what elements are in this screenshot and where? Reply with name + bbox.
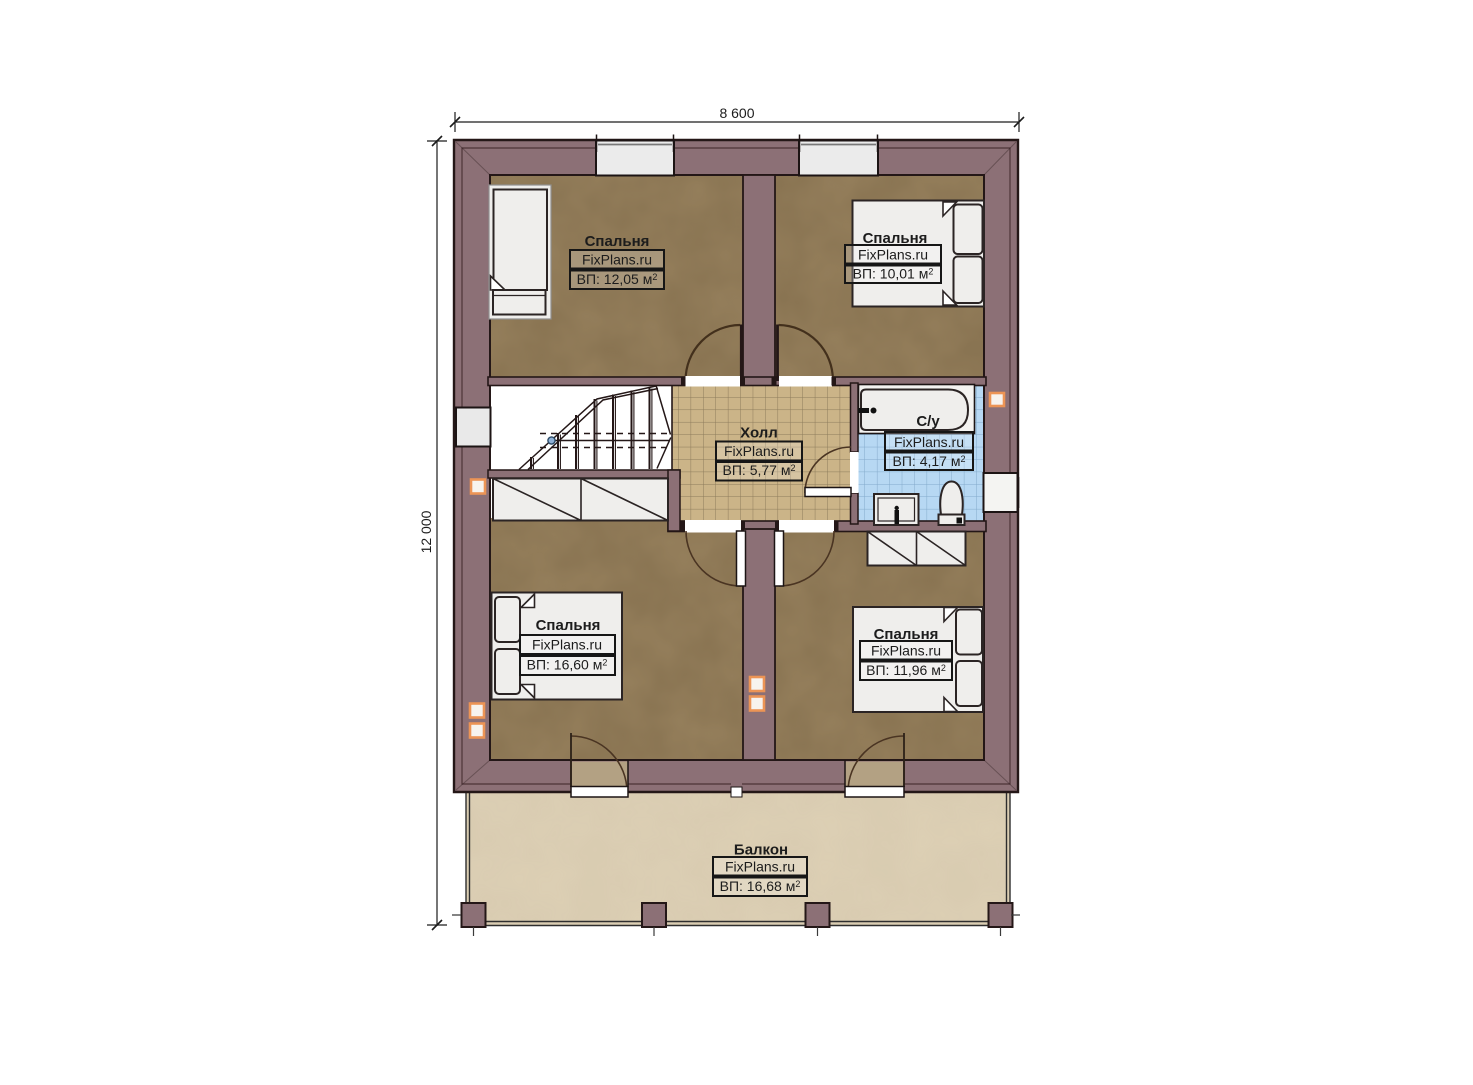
svg-text:FixPlans.ru: FixPlans.ru xyxy=(725,859,795,875)
svg-text:Балкон: Балкон xyxy=(734,842,788,859)
svg-text:С/у: С/у xyxy=(916,413,940,430)
svg-text:ВП: 4,17 м2: ВП: 4,17 м2 xyxy=(893,453,966,469)
svg-text:FixPlans.ru: FixPlans.ru xyxy=(858,247,928,263)
svg-text:ВП: 16,68 м2: ВП: 16,68 м2 xyxy=(720,878,801,894)
svg-text:ВП: 11,96 м2: ВП: 11,96 м2 xyxy=(866,662,946,678)
svg-text:ВП: 5,77 м2: ВП: 5,77 м2 xyxy=(723,462,796,478)
svg-text:ВП: 16,60 м2: ВП: 16,60 м2 xyxy=(527,657,608,673)
svg-text:Холл: Холл xyxy=(740,425,778,442)
svg-text:FixPlans.ru: FixPlans.ru xyxy=(871,643,941,659)
svg-text:Спальня: Спальня xyxy=(536,617,601,634)
svg-text:12 000: 12 000 xyxy=(418,510,434,553)
svg-text:ВП: 12,05 м2: ВП: 12,05 м2 xyxy=(577,271,658,287)
svg-text:Спальня: Спальня xyxy=(585,233,650,250)
svg-text:FixPlans.ru: FixPlans.ru xyxy=(724,443,794,459)
svg-text:8 600: 8 600 xyxy=(719,105,754,121)
svg-text:FixPlans.ru: FixPlans.ru xyxy=(894,434,964,450)
svg-text:FixPlans.ru: FixPlans.ru xyxy=(582,252,652,268)
svg-text:FixPlans.ru: FixPlans.ru xyxy=(532,637,602,653)
svg-text:ВП: 10,01 м2: ВП: 10,01 м2 xyxy=(853,266,934,282)
